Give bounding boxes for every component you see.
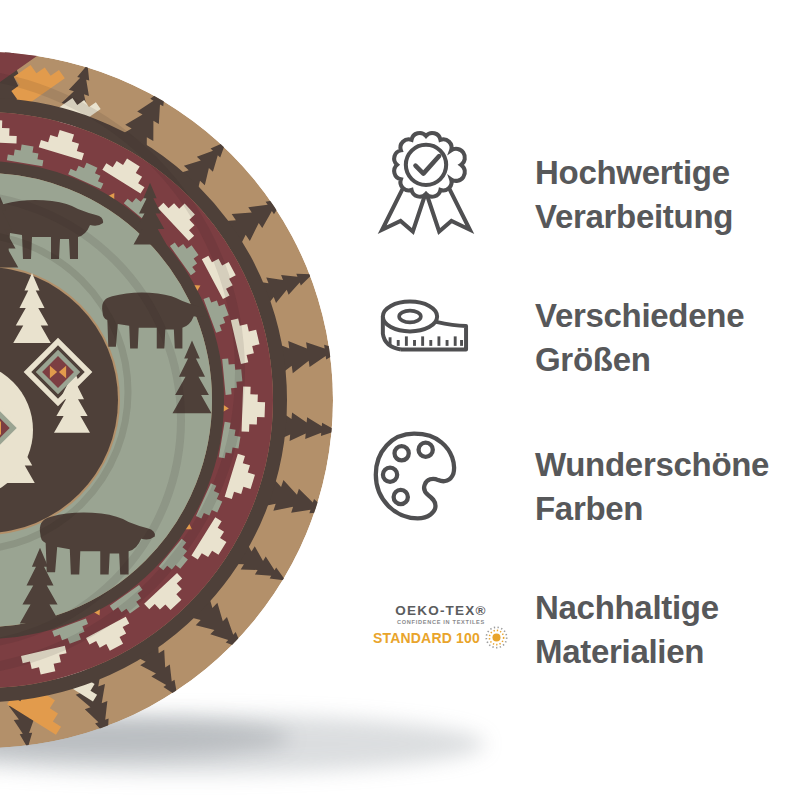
paint-palette-icon [366,423,464,530]
feature-line: Nachhaltige [535,586,719,630]
feature-line: Farben [535,487,769,531]
rolled-blanket-image [0,0,580,800]
oeko-tex-standard: STANDARD 100 [373,630,480,646]
feature-line: Verschiedene [535,294,744,338]
feature-line: Verarbeitung [535,195,733,239]
feature-text-colors: Wunderschöne Farben [535,443,769,531]
feature-line: Hochwertige [535,151,733,195]
product-infographic: Hochwertige Verarbeitung Verschied [0,0,800,800]
oeko-tex-standard-100-logo: OEKO-TEX® CONFIDENCE IN TEXTILES STANDAR… [371,603,511,650]
feature-text-materials: Nachhaltige Materialien [535,586,719,674]
feature-line: Wunderschöne [535,443,769,487]
dotted-flower-icon [484,625,509,650]
feature-text-sizes: Verschiedene Größen [535,294,744,382]
feature-line: Materialien [535,630,719,674]
oeko-tex-brand: OEKO-TEX® [371,603,511,618]
award-badge-icon [376,128,476,242]
feature-text-quality: Hochwertige Verarbeitung [535,151,733,239]
measuring-tape-icon [372,292,476,369]
feature-line: Größen [535,338,744,382]
